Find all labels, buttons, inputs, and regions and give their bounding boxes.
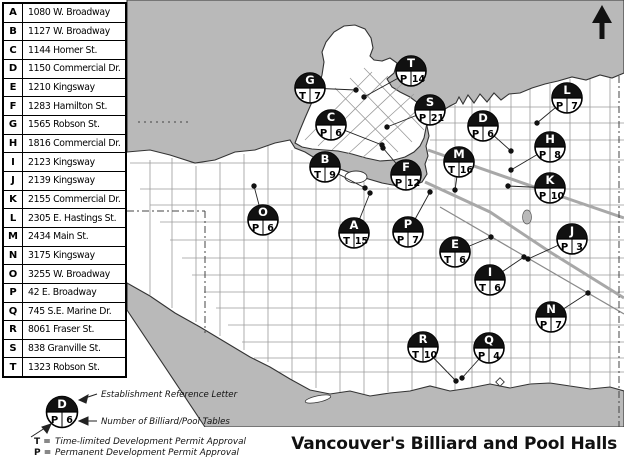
marker-permit-type: T bbox=[299, 91, 306, 102]
marker-letter: G bbox=[305, 73, 314, 87]
map-marker-D: DP6 bbox=[47, 397, 78, 428]
marker-table-count: 10 bbox=[424, 350, 438, 361]
location-dot-O bbox=[251, 183, 256, 188]
establishment-address: 2155 Commercial Dr. bbox=[23, 191, 121, 209]
establishment-address: 3255 W. Broadway bbox=[23, 265, 110, 283]
establishment-letter: Q bbox=[4, 303, 23, 321]
marker-permit-type: P bbox=[51, 415, 58, 426]
marker-letter: A bbox=[350, 218, 359, 232]
marker-table-count: 6 bbox=[267, 223, 274, 234]
establishment-address: 1127 W. Broadway bbox=[23, 23, 110, 41]
legend-ref-label: Establishment Reference Letter bbox=[101, 390, 238, 400]
marker-letter: L bbox=[563, 83, 571, 97]
location-dot-T bbox=[361, 94, 366, 99]
establishment-address: 1323 Robson St. bbox=[23, 358, 100, 376]
table-row: I2123 Kingsway bbox=[4, 153, 125, 172]
marker-permit-type: P bbox=[539, 150, 546, 161]
location-dot-E bbox=[488, 234, 493, 239]
table-row: N3175 Kingsway bbox=[4, 247, 125, 266]
table-row: Q745 S.E. Marine Dr. bbox=[4, 303, 125, 322]
table-row: D1150 Commercial Dr. bbox=[4, 60, 125, 79]
establishment-address: 1210 Kingsway bbox=[23, 79, 95, 97]
map-legend: DP6 Establishment Reference Letter Numbe… bbox=[0, 378, 330, 459]
establishments-table: A1080 W. BroadwayB1127 W. BroadwayC1144 … bbox=[2, 2, 127, 378]
establishment-address: 745 S.E. Marine Dr. bbox=[23, 303, 111, 321]
establishment-address: 1080 W. Broadway bbox=[23, 4, 110, 22]
legend-permit-p-text: Permanent Development Permit Approval bbox=[55, 448, 239, 458]
map-marker-I: IT6 bbox=[475, 265, 505, 295]
marker-letter: J bbox=[569, 224, 574, 238]
marker-permit-type: P bbox=[556, 101, 563, 112]
establishment-letter: E bbox=[4, 79, 23, 97]
marker-table-count: 6 bbox=[66, 415, 73, 426]
marker-letter: S bbox=[426, 95, 434, 109]
marker-permit-type: P bbox=[478, 351, 485, 362]
establishment-letter: T bbox=[4, 358, 23, 376]
map-marker-P: PP7 bbox=[393, 217, 423, 247]
legend-permit-p-symbol: P = bbox=[34, 448, 51, 458]
marker-permit-type: P bbox=[400, 74, 407, 85]
establishment-letter: A bbox=[4, 4, 23, 22]
table-row: O3255 W. Broadway bbox=[4, 265, 125, 284]
marker-table-count: 6 bbox=[459, 255, 466, 266]
map-marker-B: BT9 bbox=[310, 152, 340, 182]
marker-table-count: 16 bbox=[460, 165, 474, 176]
location-dot-R bbox=[453, 378, 458, 383]
table-row: M2434 Main St. bbox=[4, 228, 125, 247]
marker-letter: P bbox=[404, 217, 412, 231]
establishment-address: 42 E. Broadway bbox=[23, 284, 96, 302]
map-marker-K: KP10 bbox=[535, 173, 565, 203]
marker-table-count: 7 bbox=[314, 91, 321, 102]
table-row: L2305 E. Hastings St. bbox=[4, 209, 125, 228]
location-dot-J bbox=[525, 256, 530, 261]
table-row: T1323 Robson St. bbox=[4, 358, 125, 376]
table-row: B1127 W. Broadway bbox=[4, 23, 125, 42]
location-dot-H bbox=[508, 167, 513, 172]
marker-permit-type: T bbox=[448, 165, 455, 176]
establishment-address: 2123 Kingsway bbox=[23, 153, 95, 171]
marker-permit-type: P bbox=[419, 113, 426, 124]
marker-permit-type: T bbox=[343, 236, 350, 247]
marker-letter: E bbox=[451, 237, 459, 251]
establishment-address: 1283 Hamilton St. bbox=[23, 97, 107, 115]
marker-table-count: 12 bbox=[407, 178, 420, 189]
marker-table-count: 10 bbox=[551, 191, 565, 202]
map-marker-R: RT10 bbox=[408, 332, 438, 362]
marker-letter: F bbox=[402, 160, 410, 174]
map-marker-F: FP12 bbox=[391, 160, 421, 190]
marker-letter: I bbox=[488, 265, 492, 279]
map-marker-J: JP3 bbox=[557, 224, 587, 254]
marker-permit-type: P bbox=[539, 191, 546, 202]
marker-letter: O bbox=[258, 205, 268, 219]
establishment-address: 1565 Robson St. bbox=[23, 116, 100, 134]
establishment-letter: P bbox=[4, 284, 23, 302]
establishment-address: 1816 Commercial Dr. bbox=[23, 135, 121, 153]
marker-table-count: 6 bbox=[494, 283, 501, 294]
marker-table-count: 7 bbox=[555, 320, 562, 331]
legend-tables-label: Number of Billiard/Pool Tables bbox=[101, 417, 230, 427]
location-dot-S bbox=[384, 124, 389, 129]
map-marker-C: CP6 bbox=[316, 110, 346, 140]
table-row: A1080 W. Broadway bbox=[4, 4, 125, 23]
table-row: E1210 Kingsway bbox=[4, 79, 125, 98]
marker-table-count: 21 bbox=[431, 113, 444, 124]
location-dot-K bbox=[505, 183, 510, 188]
table-row: H1816 Commercial Dr. bbox=[4, 135, 125, 154]
marker-letter: D bbox=[478, 111, 488, 125]
table-row: J2139 Kingsway bbox=[4, 172, 125, 191]
marker-letter: Q bbox=[484, 333, 494, 347]
establishment-letter: M bbox=[4, 228, 23, 246]
establishment-address: 2305 E. Hastings St. bbox=[23, 209, 116, 227]
location-dot-Q bbox=[459, 375, 464, 380]
marker-letter: K bbox=[546, 173, 556, 187]
establishment-address: 2434 Main St. bbox=[23, 228, 88, 246]
map-title: Vancouver's Billiard and Pool Halls bbox=[291, 434, 617, 454]
marker-table-count: 8 bbox=[554, 150, 561, 161]
marker-permit-type: P bbox=[395, 178, 402, 189]
marker-letter: B bbox=[321, 152, 330, 166]
marker-letter: M bbox=[453, 147, 464, 161]
map-marker-T: TP14 bbox=[396, 56, 426, 86]
marker-table-count: 3 bbox=[576, 242, 583, 253]
location-dot-G bbox=[353, 87, 358, 92]
establishment-address: 838 Granville St. bbox=[23, 340, 101, 358]
location-dot-M bbox=[452, 187, 457, 192]
marker-permit-type: P bbox=[472, 129, 479, 140]
table-row: K2155 Commercial Dr. bbox=[4, 191, 125, 210]
table-row: R8061 Fraser St. bbox=[4, 321, 125, 340]
location-dot-L bbox=[534, 120, 539, 125]
establishment-letter: J bbox=[4, 172, 23, 190]
table-row: G1565 Robson St. bbox=[4, 116, 125, 135]
establishment-letter: S bbox=[4, 340, 23, 358]
map-marker-D: DP6 bbox=[468, 111, 498, 141]
legend-permit-t-text: Time-limited Development Permit Approval bbox=[55, 437, 247, 447]
establishment-letter: R bbox=[4, 321, 23, 339]
table-row: C1144 Homer St. bbox=[4, 41, 125, 60]
marker-letter: D bbox=[57, 397, 67, 411]
marker-permit-type: P bbox=[320, 128, 327, 139]
marker-table-count: 7 bbox=[412, 235, 419, 246]
marker-letter: R bbox=[419, 332, 428, 346]
marker-permit-type: T bbox=[412, 350, 419, 361]
establishment-letter: K bbox=[4, 191, 23, 209]
location-dot-F bbox=[380, 145, 385, 150]
table-row: P42 E. Broadway bbox=[4, 284, 125, 303]
establishment-address: 1150 Commercial Dr. bbox=[23, 60, 121, 78]
establishment-letter: L bbox=[4, 209, 23, 227]
marker-permit-type: T bbox=[479, 283, 486, 294]
establishment-letter: H bbox=[4, 135, 23, 153]
map-marker-H: HP8 bbox=[535, 132, 565, 162]
establishment-address: 3175 Kingsway bbox=[23, 247, 95, 265]
map-marker-E: ET6 bbox=[440, 237, 470, 267]
map-marker-Q: QP4 bbox=[474, 333, 504, 363]
map-marker-S: SP21 bbox=[415, 95, 445, 125]
marker-table-count: 9 bbox=[329, 170, 336, 181]
map-marker-M: MT16 bbox=[444, 147, 474, 177]
map-marker-A: AT15 bbox=[339, 218, 369, 248]
marker-letter: C bbox=[327, 110, 335, 124]
establishment-address: 8061 Fraser St. bbox=[23, 321, 94, 339]
marker-permit-type: T bbox=[444, 255, 451, 266]
establishment-letter: G bbox=[4, 116, 23, 134]
granville-island bbox=[345, 171, 367, 183]
marker-letter: H bbox=[545, 132, 555, 146]
establishment-letter: D bbox=[4, 60, 23, 78]
marker-table-count: 4 bbox=[493, 351, 500, 362]
table-row: S838 Granville St. bbox=[4, 340, 125, 359]
table-row: F1283 Hamilton St. bbox=[4, 97, 125, 116]
location-dot-N bbox=[585, 290, 590, 295]
location-dot-D bbox=[508, 148, 513, 153]
establishment-address: 1144 Homer St. bbox=[23, 41, 97, 59]
marker-table-count: 6 bbox=[487, 129, 494, 140]
marker-table-count: 6 bbox=[335, 128, 342, 139]
trout-lake bbox=[523, 210, 532, 224]
marker-permit-type: P bbox=[397, 235, 404, 246]
location-dot-P bbox=[427, 189, 432, 194]
marker-permit-type: P bbox=[540, 320, 547, 331]
establishment-letter: N bbox=[4, 247, 23, 265]
location-dot-B bbox=[362, 185, 367, 190]
establishment-address: 2139 Kingsway bbox=[23, 172, 95, 190]
marker-permit-type: T bbox=[314, 170, 321, 181]
map-marker-L: LP7 bbox=[552, 83, 582, 113]
marker-table-count: 14 bbox=[412, 74, 426, 85]
map-marker-N: NP7 bbox=[536, 302, 566, 332]
legend-sample-marker: DP6 bbox=[47, 397, 78, 428]
marker-table-count: 7 bbox=[571, 101, 578, 112]
establishment-letter: C bbox=[4, 41, 23, 59]
map-marker-O: OP6 bbox=[248, 205, 278, 235]
legend-permit-t-symbol: T = bbox=[34, 437, 51, 447]
location-dot-A bbox=[367, 190, 372, 195]
marker-letter: T bbox=[407, 56, 415, 70]
map-marker-G: GT7 bbox=[295, 73, 325, 103]
marker-table-count: 15 bbox=[355, 236, 368, 247]
establishment-letter: B bbox=[4, 23, 23, 41]
establishment-letter: O bbox=[4, 265, 23, 283]
establishment-letter: I bbox=[4, 153, 23, 171]
marker-permit-type: P bbox=[252, 223, 259, 234]
establishment-letter: F bbox=[4, 97, 23, 115]
marker-permit-type: P bbox=[561, 242, 568, 253]
marker-letter: N bbox=[546, 302, 556, 316]
